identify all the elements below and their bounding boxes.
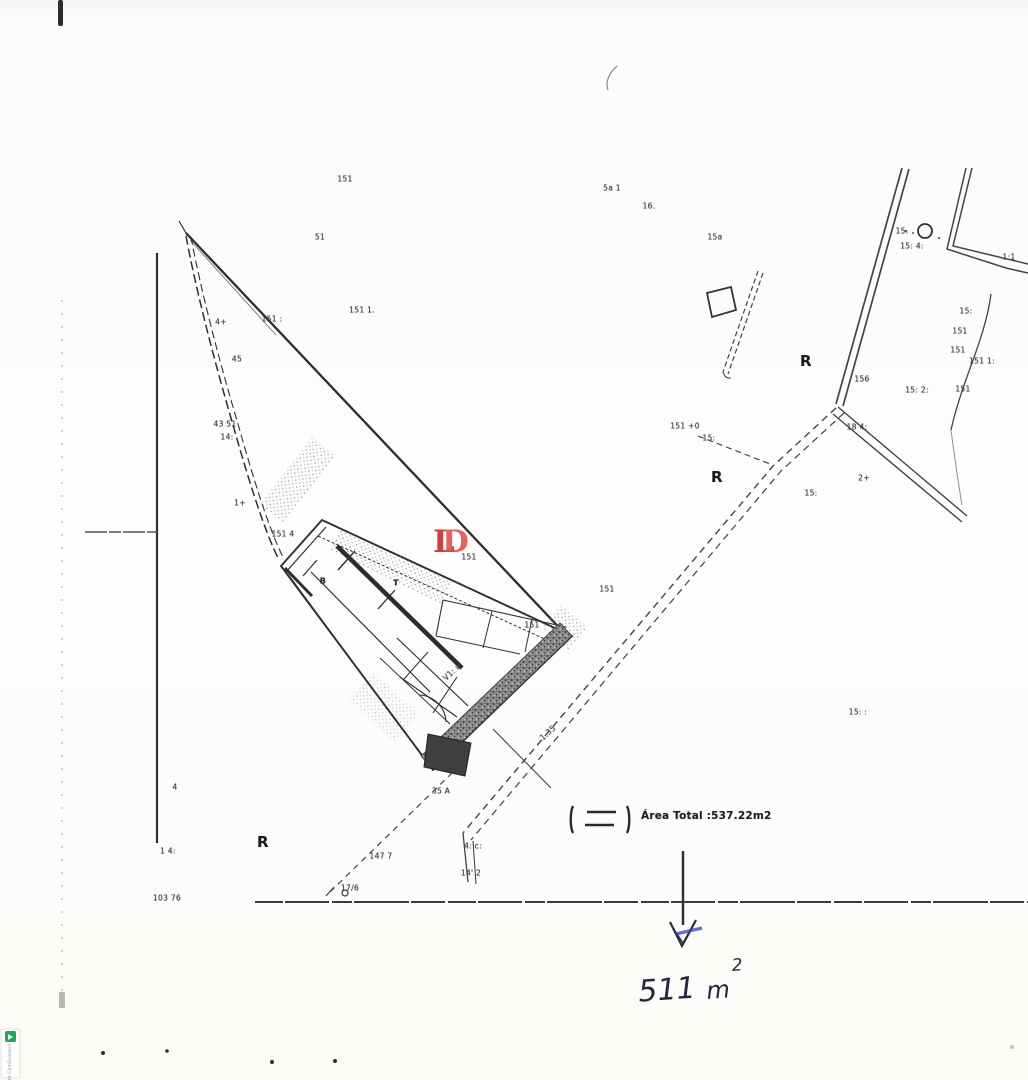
legend-symbol: [571, 806, 630, 833]
handwritten-area-value: 511: [637, 971, 697, 1010]
handwritten-area-unit: m: [705, 975, 730, 1005]
legend-area-total: Área Total :537.22m2: [641, 810, 771, 822]
circle-symbol: [918, 224, 932, 238]
stipple-patches: [260, 437, 587, 742]
plan-drawing-wrap: L D 511 m 2 1515a 116.5115a15.15: 4:1:11…: [0, 0, 1028, 1080]
building-plan: [281, 520, 572, 770]
stamp-letter-front: D: [442, 524, 469, 560]
camscanner-icon: [5, 1031, 16, 1042]
shaded-wall-band: [421, 623, 572, 776]
red-logo-stamp: L D: [433, 524, 469, 560]
site-plan-drawing: L D 511 m 2: [0, 0, 1028, 1080]
handwritten-annotation: 511 m 2: [636, 851, 745, 1010]
camscanner-watermark: Scanned with CamScanner: [1, 1029, 20, 1078]
camscanner-watermark-text: Scanned with CamScanner: [8, 1043, 13, 1080]
scan-edge-artifacts: [58, 0, 1014, 1064]
square-symbol: [707, 287, 736, 317]
parcel-boundary: [179, 221, 569, 638]
scanned-site-plan-page: L D 511 m 2 1515a 116.5115a15.15: 4:1:11…: [0, 0, 1028, 1080]
station-mark: [342, 890, 348, 896]
map-border: [85, 253, 1028, 902]
roads: [326, 168, 1028, 896]
map-symbols: [342, 224, 940, 896]
handwritten-area-exponent: 2: [731, 955, 743, 976]
